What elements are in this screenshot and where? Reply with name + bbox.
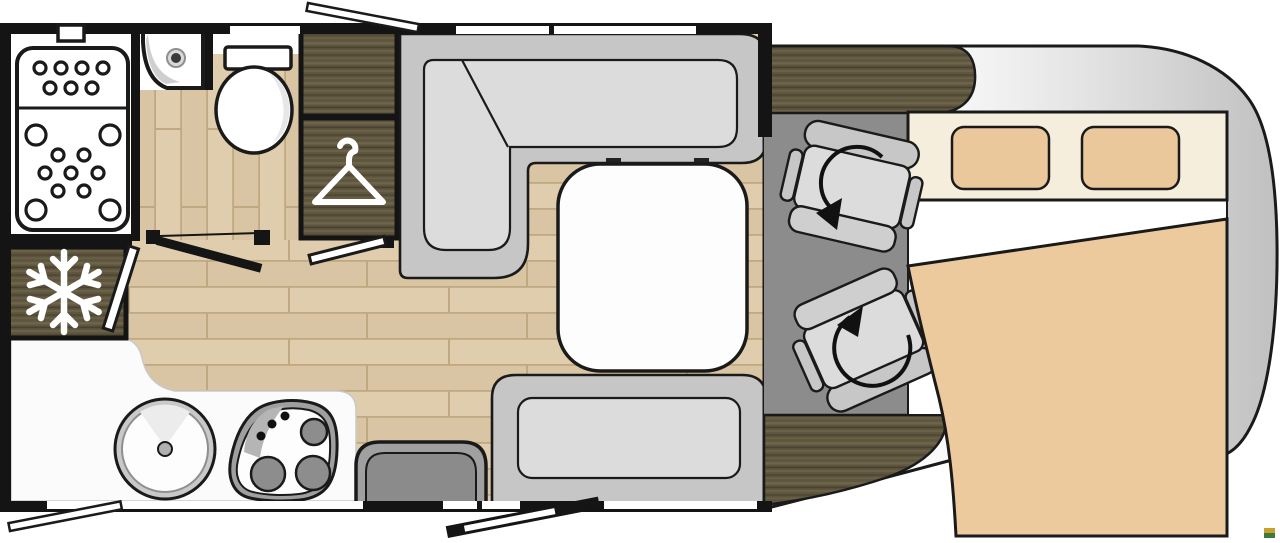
pillow-right: [1082, 127, 1179, 189]
dashboard-upper: [764, 46, 975, 113]
toilet: [216, 47, 292, 153]
side-bench: [492, 375, 766, 505]
window-top-left: [456, 26, 549, 34]
shower-tray: [17, 48, 128, 230]
wall-bathroom: [8, 234, 132, 246]
watermark: [1264, 528, 1275, 538]
hob-knob: [281, 412, 290, 421]
wardrobe: [301, 118, 397, 238]
dashboard-lower: [764, 415, 946, 505]
window-lounge: [604, 501, 757, 509]
wall-left: [0, 23, 11, 512]
table: [558, 164, 747, 371]
corner-sink: [143, 30, 203, 88]
pillow-left: [952, 127, 1049, 189]
burner-small: [301, 419, 327, 445]
entry-step: [356, 442, 486, 508]
floorplan-canvas: [0, 0, 1280, 543]
toilet-bowl: [216, 67, 292, 153]
overhead-cabinet: [301, 28, 397, 116]
sink-tap: [171, 53, 181, 63]
door-threshold-right: [482, 501, 520, 509]
side-bench-cushion: [518, 398, 740, 478]
window-top-right: [554, 26, 696, 34]
window-bathroom: [230, 26, 300, 34]
burner-large-left: [251, 457, 285, 491]
shower: [8, 26, 137, 238]
bed-blanket: [908, 219, 1227, 536]
sink-drain: [158, 442, 172, 456]
door-threshold-left: [443, 501, 477, 509]
wall-shower-partition: [131, 26, 140, 238]
burner-large-right: [296, 456, 330, 490]
motorhome-floorplan: [0, 0, 1280, 543]
shower-mixer: [58, 25, 84, 41]
wall-sink-partition: [205, 26, 213, 90]
hob-knob: [268, 420, 277, 429]
wall-cab-stub: [758, 23, 772, 137]
hob-knob: [257, 432, 266, 441]
kitchen-sink: [115, 399, 215, 499]
